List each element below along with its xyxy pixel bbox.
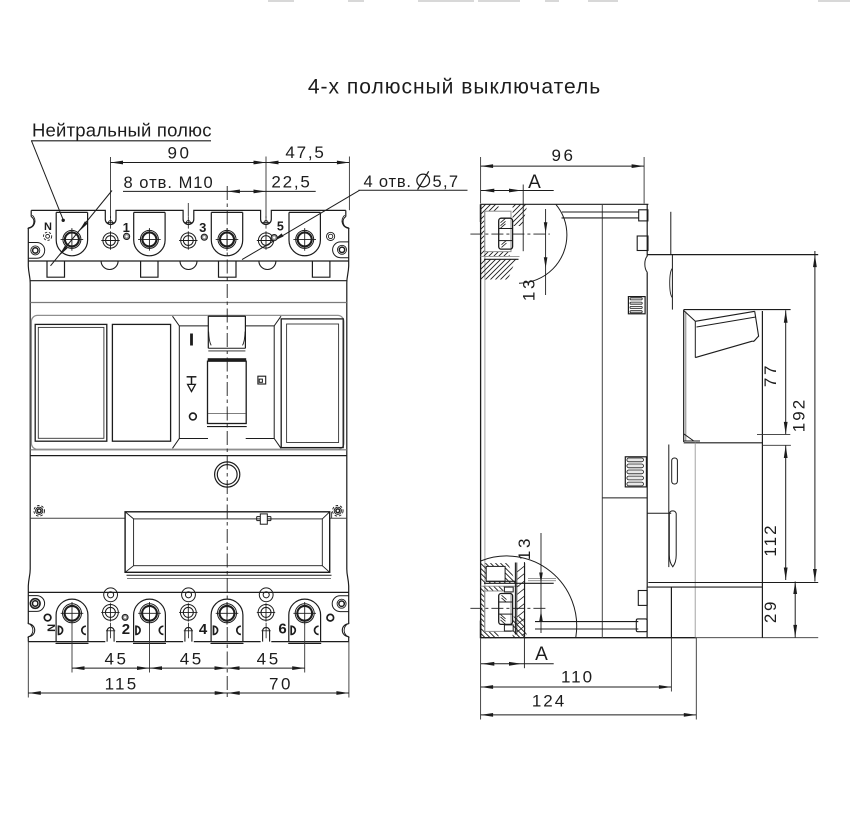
svg-text:5,7: 5,7 — [433, 173, 460, 191]
svg-text:70: 70 — [269, 675, 293, 694]
svg-text:1: 1 — [123, 220, 130, 235]
svg-text:90: 90 — [167, 144, 191, 163]
svg-text:45: 45 — [257, 650, 281, 669]
svg-text:47,5: 47,5 — [285, 143, 325, 162]
svg-text:N: N — [44, 221, 52, 233]
svg-text:13: 13 — [515, 536, 534, 560]
svg-text:N: N — [44, 624, 56, 632]
svg-text:192: 192 — [790, 398, 809, 432]
svg-text:2: 2 — [122, 621, 130, 638]
svg-text:29: 29 — [761, 599, 780, 623]
svg-text:77: 77 — [761, 363, 780, 387]
svg-text:Нейтральный полюс: Нейтральный полюс — [32, 120, 212, 141]
svg-text:4: 4 — [199, 621, 208, 638]
svg-text:3: 3 — [199, 220, 206, 235]
svg-text:124: 124 — [532, 692, 566, 711]
svg-text:45: 45 — [180, 650, 204, 669]
svg-text:96: 96 — [551, 146, 575, 165]
svg-text:А: А — [535, 644, 548, 665]
svg-text:110: 110 — [561, 668, 594, 687]
svg-text:13: 13 — [520, 277, 539, 301]
svg-text:45: 45 — [104, 650, 128, 669]
svg-text:8 отв. М10: 8 отв. М10 — [124, 174, 214, 192]
svg-text:6: 6 — [278, 620, 286, 637]
svg-text:22,5: 22,5 — [271, 173, 311, 192]
svg-text:А: А — [528, 172, 541, 193]
svg-text:4 отв.: 4 отв. — [364, 173, 412, 191]
svg-text:115: 115 — [105, 675, 139, 694]
svg-text:4-х полюсный выключатель: 4-х полюсный выключатель — [308, 76, 601, 99]
svg-text:5: 5 — [277, 220, 284, 234]
svg-text:112: 112 — [761, 523, 780, 556]
